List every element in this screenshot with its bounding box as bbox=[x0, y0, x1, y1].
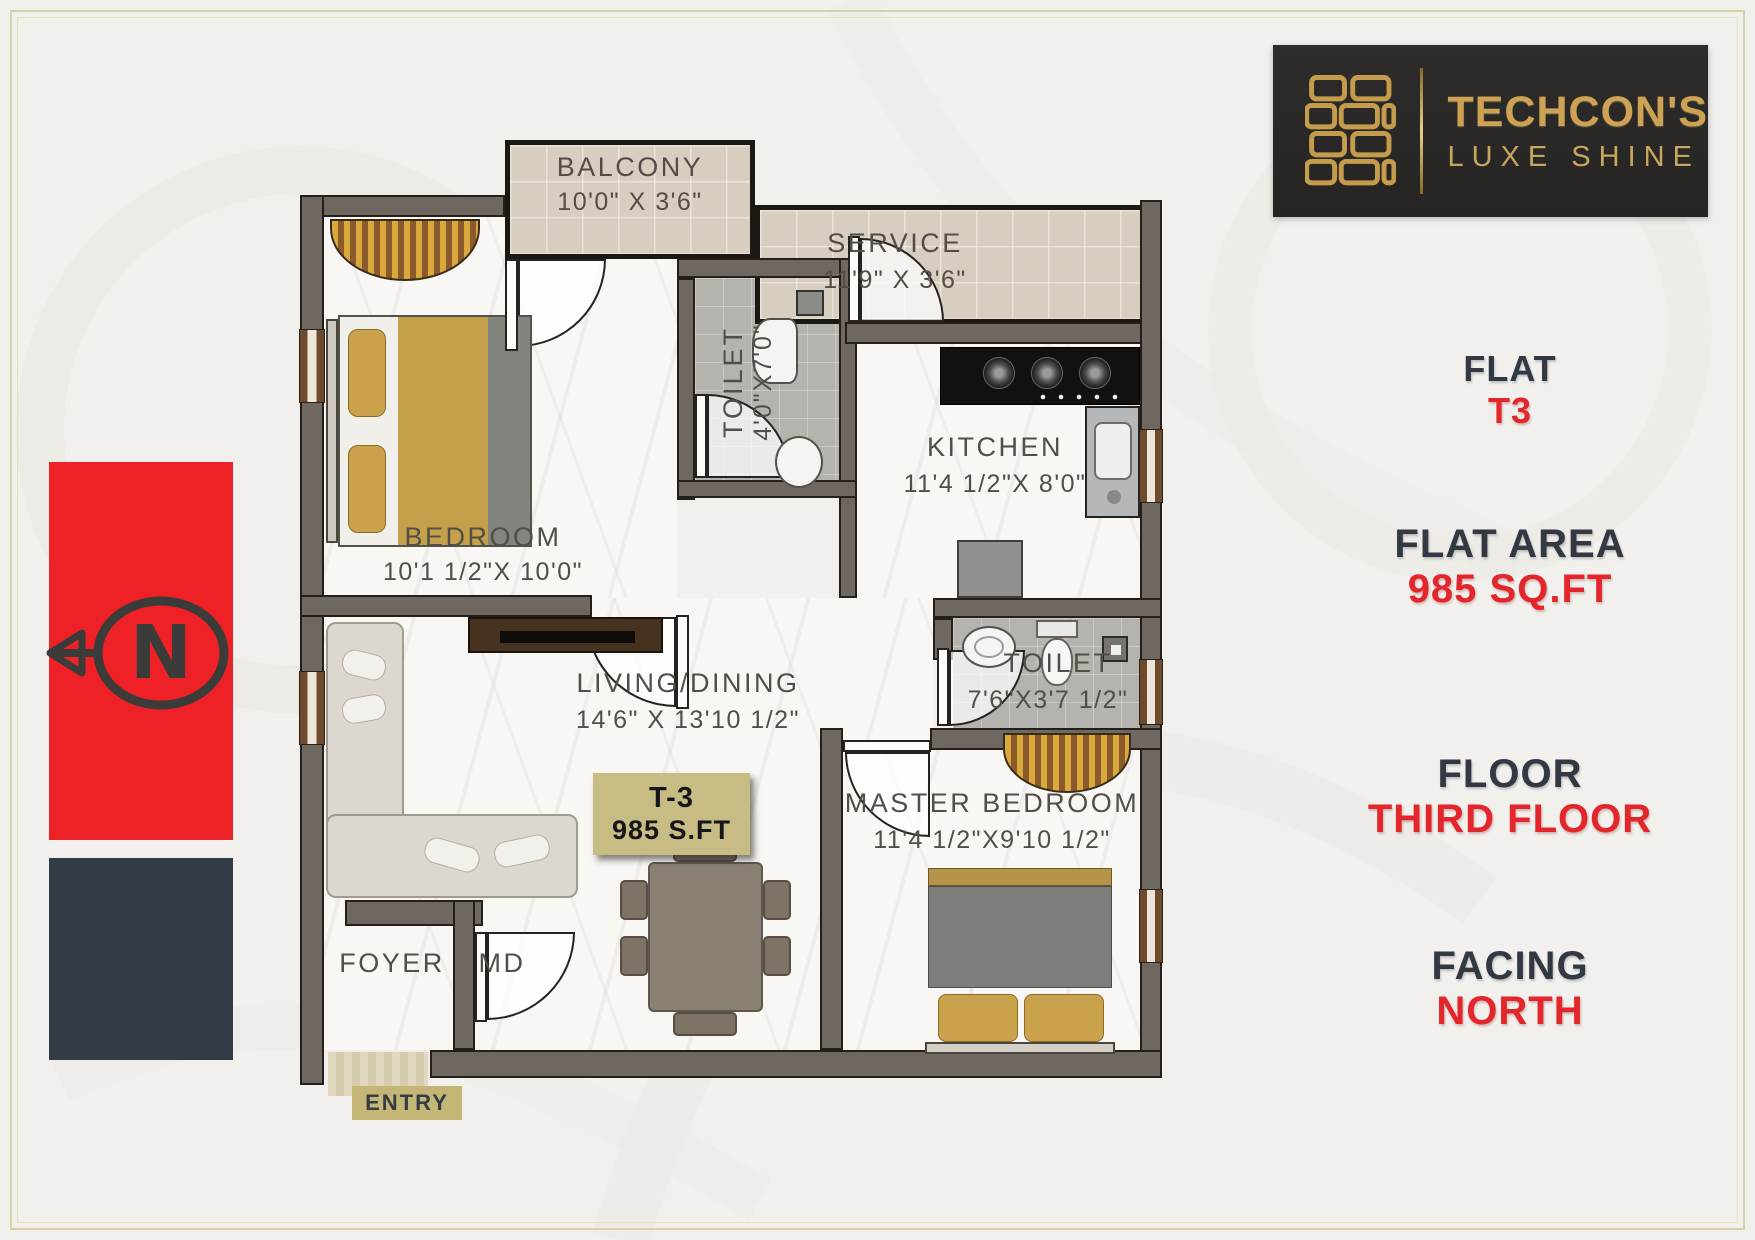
master-bed-blanket bbox=[928, 886, 1112, 988]
toilet-top-dims: 4'0"X7'0" bbox=[749, 323, 778, 441]
wall-bedroom-bottom bbox=[300, 595, 592, 617]
tv-console bbox=[468, 617, 663, 653]
toilet-right-wc-tank bbox=[1036, 620, 1078, 638]
master-bed-fold bbox=[928, 868, 1112, 886]
toilet-right-door-leaf bbox=[937, 648, 949, 726]
bedroom-bed bbox=[326, 315, 532, 547]
flat-area-label: FLAT AREA bbox=[1330, 522, 1690, 567]
compass-icon: N bbox=[36, 573, 286, 743]
facing-label: FACING bbox=[1330, 944, 1690, 989]
unit-badge: T-3 985 S.FT bbox=[593, 773, 750, 855]
service-label: SERVICE bbox=[827, 228, 963, 259]
dining-chair-4 bbox=[763, 936, 791, 976]
master-dims: 11'4 1/2"X9'10 1/2" bbox=[873, 826, 1110, 855]
service-dims: 11'9" X 3'6" bbox=[823, 266, 967, 295]
bedroom-label: BEDROOM bbox=[404, 522, 561, 553]
balcony-dims: 10'0" X 3'6" bbox=[557, 188, 702, 217]
window-left-2 bbox=[300, 672, 324, 744]
flat-area-value: 985 SQ.FT bbox=[1330, 567, 1690, 612]
facing-value: NORTH bbox=[1330, 989, 1690, 1034]
bed-throw bbox=[488, 317, 530, 545]
entry-badge: ENTRY bbox=[352, 1086, 462, 1120]
master-door-leaf bbox=[843, 740, 931, 752]
dining-chair-6 bbox=[673, 1012, 737, 1036]
kitchen-sink-unit bbox=[1085, 406, 1140, 518]
floor-plan-poster: N bbox=[0, 0, 1755, 1240]
wall-foyer-right bbox=[453, 900, 475, 1050]
flat-value: T3 bbox=[1330, 390, 1690, 432]
dining-chair-3 bbox=[763, 880, 791, 920]
stove-burner-3 bbox=[1079, 357, 1111, 389]
stove-knobs bbox=[1037, 393, 1123, 401]
floor-label: FLOOR bbox=[1330, 752, 1690, 797]
bed-headboard bbox=[326, 319, 338, 543]
wall-left bbox=[300, 195, 324, 1085]
wall-bottom bbox=[430, 1050, 1162, 1078]
dining-chair-2 bbox=[620, 936, 648, 976]
unit-area: 985 S.FT bbox=[612, 815, 731, 846]
bedroom-dims: 10'1 1/2"X 10'0" bbox=[383, 558, 583, 587]
brand-tagline: LUXE SHINE bbox=[1447, 141, 1708, 174]
wall-master-left bbox=[820, 728, 843, 1050]
info-floor: FLOOR THIRD FLOOR bbox=[1330, 752, 1690, 842]
stove-burner-1 bbox=[983, 357, 1015, 389]
brick-logo-icon bbox=[1305, 72, 1396, 190]
window-right-3 bbox=[1140, 890, 1162, 962]
dining-table bbox=[648, 862, 763, 1012]
living-dims: 14'6" X 13'10 1/2" bbox=[576, 706, 800, 735]
bed-pillow-2 bbox=[348, 445, 386, 533]
stove-burner-2 bbox=[1031, 357, 1063, 389]
master-label: MASTER BEDROOM bbox=[845, 788, 1140, 819]
window-right-1 bbox=[1140, 430, 1162, 502]
master-bed bbox=[928, 868, 1112, 1052]
window-right-2 bbox=[1140, 660, 1162, 724]
unit-number: T-3 bbox=[649, 782, 694, 815]
info-flat: FLAT T3 bbox=[1330, 348, 1690, 432]
wall-toilet-top-left bbox=[677, 278, 695, 500]
wall-toilet-top-bottom bbox=[677, 480, 857, 498]
kitchen-label: KITCHEN bbox=[927, 432, 1063, 463]
window-left-1 bbox=[300, 330, 324, 402]
bed-blanket bbox=[398, 317, 488, 545]
toilet-top-cistern bbox=[796, 290, 824, 316]
logo: TECHCON'S LUXE SHINE bbox=[1273, 45, 1708, 217]
tv-screen bbox=[500, 631, 635, 643]
master-bed-headboard bbox=[925, 1042, 1115, 1054]
info-facing: FACING NORTH bbox=[1330, 944, 1690, 1034]
floor-value: THIRD FLOOR bbox=[1330, 797, 1690, 842]
toilet-right-dims: 7'6"X3'7 1/2" bbox=[968, 686, 1129, 715]
info-flat-area: FLAT AREA 985 SQ.FT bbox=[1330, 522, 1690, 612]
kitchen-appliance bbox=[957, 540, 1023, 598]
md-label: MD bbox=[479, 948, 526, 979]
dining-chair-1 bbox=[620, 880, 648, 920]
brand-name: TECHCON'S bbox=[1447, 88, 1708, 137]
wall-kitchen-top bbox=[845, 322, 1162, 344]
toilet-right-label: TOILET bbox=[1003, 648, 1112, 679]
master-bed-pillow-1 bbox=[938, 994, 1018, 1042]
toilet-top-label-group: TOILET 4'0"X7'0" bbox=[718, 323, 778, 441]
kitchen-sink-tap bbox=[1107, 490, 1121, 504]
toilet-top-door-leaf bbox=[695, 394, 707, 478]
logo-divider bbox=[1420, 68, 1424, 194]
foyer-label: FOYER bbox=[339, 948, 445, 979]
balcony-label: BALCONY bbox=[557, 152, 704, 183]
wall-top-bedroom bbox=[300, 195, 505, 217]
entry-label: ENTRY bbox=[365, 1090, 449, 1116]
living-label: LIVING/DINING bbox=[576, 668, 799, 699]
flat-label: FLAT bbox=[1330, 348, 1690, 390]
master-bed-pillow-2 bbox=[1024, 994, 1104, 1042]
kitchen-counter bbox=[940, 347, 1140, 405]
balcony-door-leaf bbox=[505, 259, 518, 351]
basin-bowl bbox=[974, 636, 1004, 658]
bed-pillow-1 bbox=[348, 329, 386, 417]
kitchen-sink-basin bbox=[1094, 422, 1132, 480]
wall-toilet-right-top bbox=[933, 598, 1162, 618]
toilet-top-label: TOILET bbox=[718, 323, 749, 441]
kitchen-dims: 11'4 1/2"X 8'0" bbox=[904, 470, 1087, 499]
toilet-top-basin bbox=[775, 436, 823, 488]
compass-north-letter: N bbox=[130, 610, 192, 696]
